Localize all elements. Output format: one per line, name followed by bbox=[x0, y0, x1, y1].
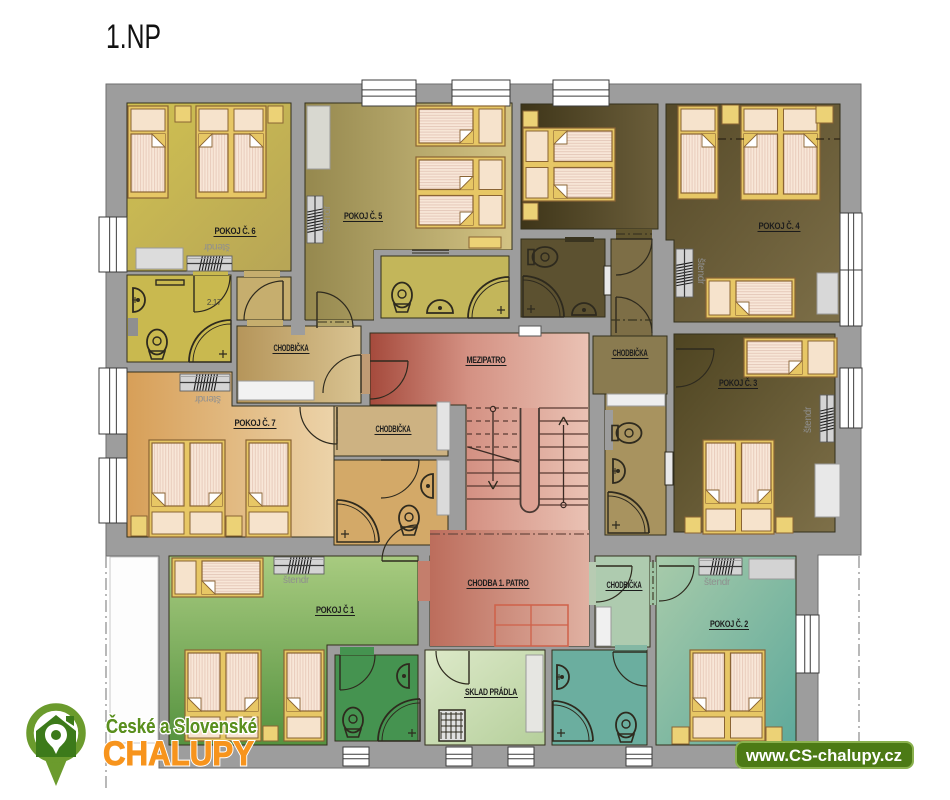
svg-text:štendr: štendr bbox=[203, 241, 230, 252]
svg-text:štendr: štendr bbox=[283, 575, 310, 586]
svg-text:CHODBIČKA: CHODBIČKA bbox=[613, 347, 648, 359]
svg-text:2.17: 2.17 bbox=[207, 298, 222, 307]
svg-text:CHODBIČKA: CHODBIČKA bbox=[376, 423, 411, 435]
svg-text:štendr: štendr bbox=[704, 577, 731, 588]
svg-text:POKOJ Č. 7: POKOJ Č. 7 bbox=[235, 417, 276, 429]
svg-text:POKOJ Č. 6: POKOJ Č. 6 bbox=[215, 225, 256, 237]
svg-text:CHODBIČKA: CHODBIČKA bbox=[607, 579, 642, 591]
svg-text:POKOJ Č. 4: POKOJ Č. 4 bbox=[759, 220, 801, 232]
svg-text:1.NP: 1.NP bbox=[106, 18, 161, 56]
svg-text:www.CS-chalupy.cz: www.CS-chalupy.cz bbox=[745, 746, 902, 765]
svg-text:štendr: štendr bbox=[194, 393, 221, 404]
svg-text:POKOJ Č. 3: POKOJ Č. 3 bbox=[719, 377, 757, 389]
svg-text:štendr: štendr bbox=[322, 205, 333, 232]
svg-text:CHODBA 1. PATRO: CHODBA 1. PATRO bbox=[468, 578, 529, 589]
svg-text:POKOJ Č. 2: POKOJ Č. 2 bbox=[710, 618, 748, 630]
svg-text:CHODBIČKA: CHODBIČKA bbox=[274, 342, 309, 354]
svg-text:štendr: štendr bbox=[695, 258, 706, 285]
svg-text:štendr: štendr bbox=[803, 406, 814, 433]
svg-text:SKLAD PRÁDLA: SKLAD PRÁDLA bbox=[465, 687, 517, 698]
svg-text:MEZIPATRO: MEZIPATRO bbox=[467, 355, 506, 366]
svg-text:POKOJ Č 1: POKOJ Č 1 bbox=[316, 604, 355, 616]
svg-text:POKOJ Č. 5: POKOJ Č. 5 bbox=[344, 210, 383, 222]
svg-text:CHALUPY: CHALUPY bbox=[103, 735, 254, 773]
